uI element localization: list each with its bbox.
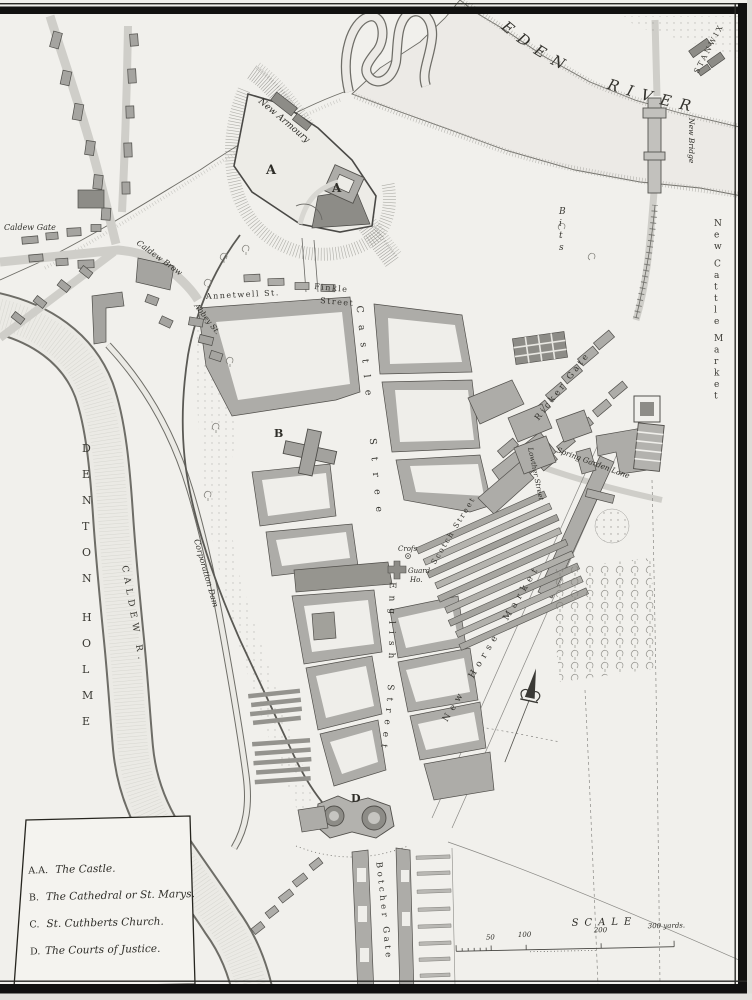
scale-tick-200: 200 <box>593 926 608 934</box>
label-guard-house-1: Guard <box>408 567 431 575</box>
marker-castle-a2: A <box>331 181 342 195</box>
orchard <box>548 558 660 682</box>
legend-key-c: C. <box>29 919 39 930</box>
legend-label-castle: The Castle. <box>55 863 115 876</box>
legend-key-b: B. <box>29 892 39 903</box>
map-page: A.A. The Castle. B. The Cathedral or St.… <box>0 0 752 1000</box>
marker-courts-d: D <box>351 792 361 805</box>
label-new-bridge: New Bridge <box>687 117 696 164</box>
legend-label-st-cuthberts: St. Cuthberts Church. <box>46 916 164 930</box>
label-cross: Crofs <box>398 545 418 553</box>
city-map: A.A. The Castle. B. The Cathedral or St.… <box>0 0 752 1000</box>
scale-tick-50: 50 <box>486 933 496 941</box>
round-plot <box>595 509 629 543</box>
scale-tick-100: 100 <box>518 931 532 939</box>
legend: A.A. The Castle. B. The Cathedral or St.… <box>14 816 196 987</box>
marker-castle-a1: A <box>265 163 277 178</box>
legend-key-d: D. <box>30 946 41 957</box>
legend-key-a: A.A. <box>27 865 48 876</box>
label-guard-house-2: Ho. <box>409 576 422 584</box>
marker-cathedral-b: B <box>274 427 283 440</box>
scale-tick-300: 300 yards. <box>648 921 686 930</box>
legend-label-courts: The Courts of Justice. <box>45 943 161 957</box>
label-caldew-gate: Caldew Gate <box>4 223 56 232</box>
